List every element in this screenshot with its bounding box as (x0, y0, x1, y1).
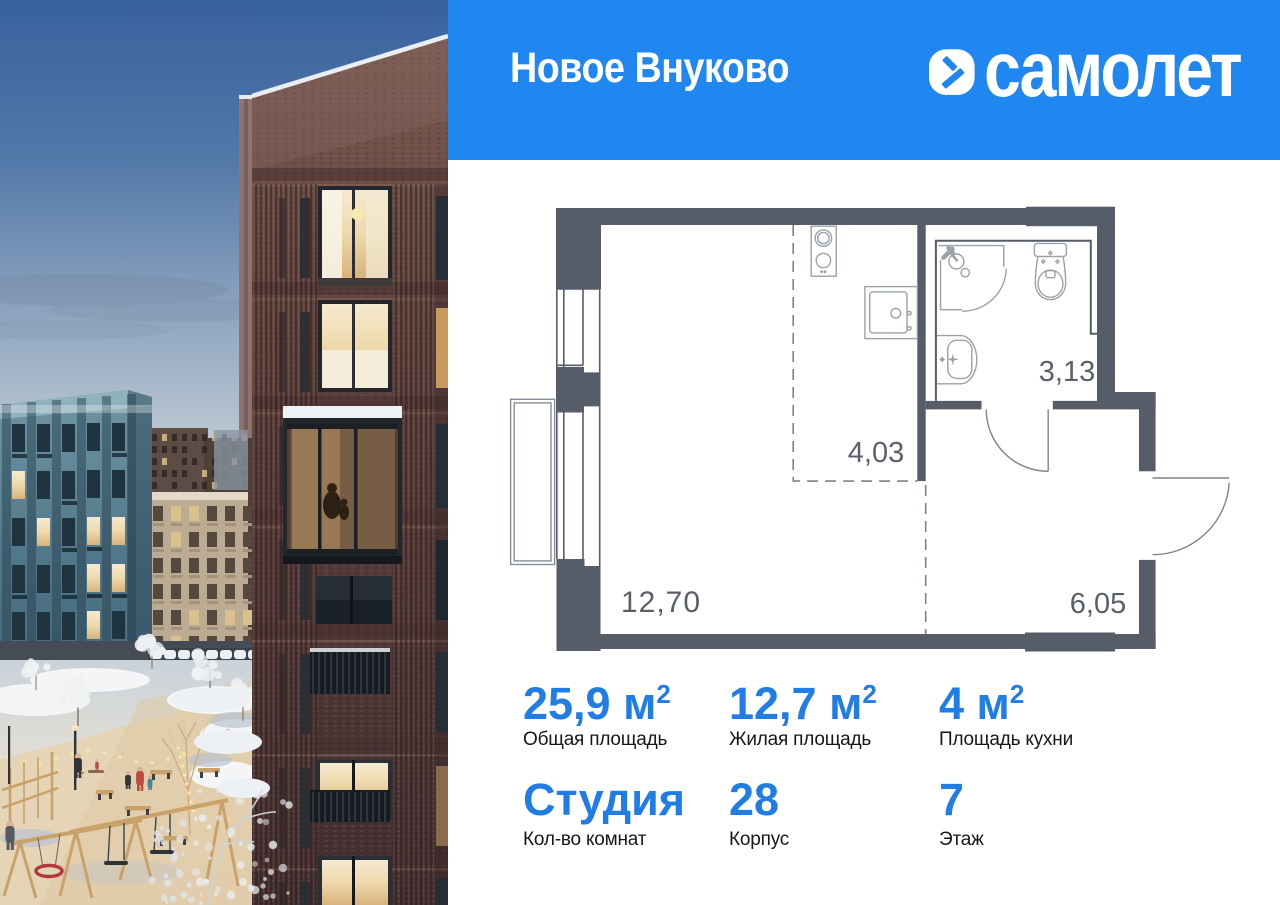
svg-text:12,70: 12,70 (621, 586, 701, 619)
svg-text:4,03: 4,03 (848, 437, 904, 469)
svg-text:6,05: 6,05 (1070, 588, 1126, 620)
svg-text:3,13: 3,13 (1039, 356, 1095, 388)
